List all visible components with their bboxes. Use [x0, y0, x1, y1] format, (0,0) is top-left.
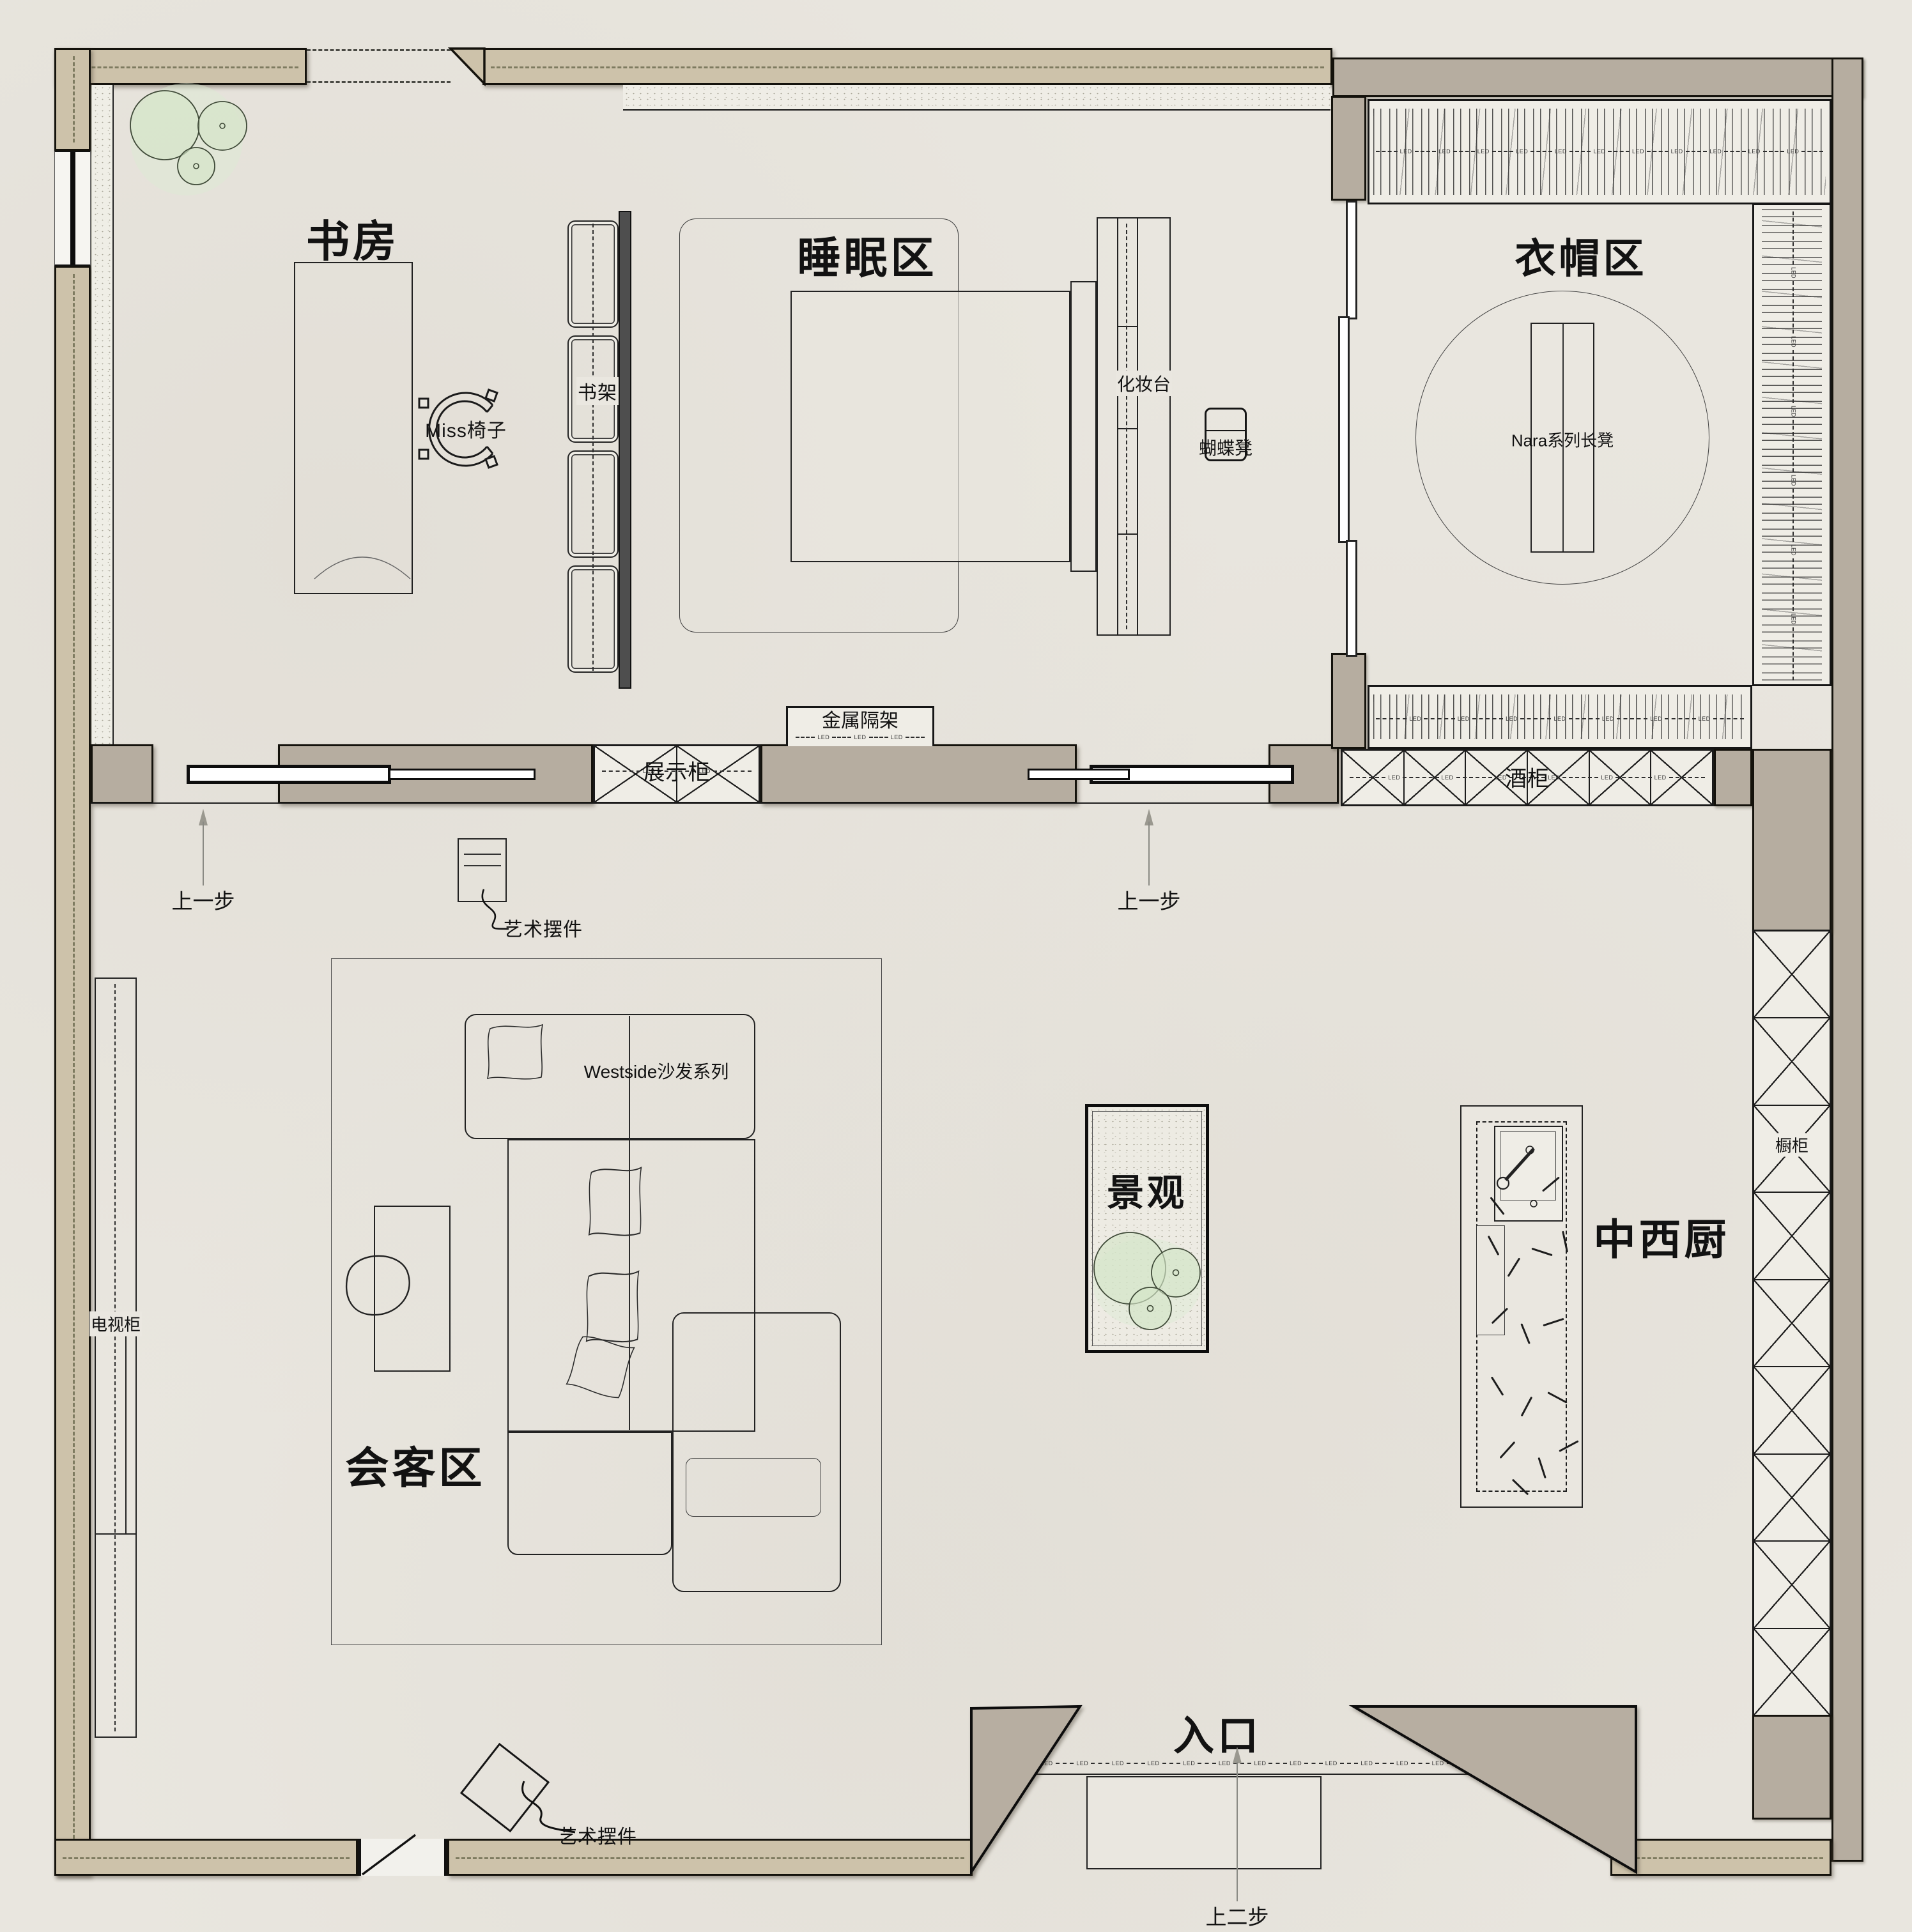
wall-bottom-left — [54, 1839, 358, 1876]
dressing-table-col-right — [1137, 218, 1138, 634]
led-dash — [1304, 1763, 1323, 1764]
led-text: LED — [1593, 149, 1605, 155]
wall-bottom-mid — [447, 1839, 973, 1876]
led-dash — [1617, 718, 1647, 719]
led-text: LED — [1076, 1761, 1088, 1767]
kitchen-sink-inner — [1500, 1131, 1556, 1200]
art-object-2 — [460, 1743, 550, 1832]
landscape-box-inner-border — [1092, 1111, 1202, 1346]
miss-chair-label: Miss椅子 — [425, 415, 507, 443]
led-dash — [906, 737, 925, 738]
led-dash — [713, 770, 752, 772]
led-dash — [1056, 1763, 1074, 1764]
divider-stub-bottom — [1331, 653, 1366, 749]
step-up-two-label: 上二步 — [1206, 1900, 1269, 1931]
entrance-led-baseline — [1017, 1774, 1503, 1775]
led-dash — [1198, 1763, 1216, 1764]
tv-cabinet-label: 电视柜 — [89, 1312, 142, 1337]
led-dash — [1020, 1763, 1038, 1764]
cabinet-cell — [1754, 1542, 1830, 1629]
closet-top: LEDLEDLEDLEDLEDLEDLEDLEDLEDLEDLED — [1368, 99, 1831, 204]
wall-left-lower — [54, 266, 91, 1876]
led-text: LED — [1699, 716, 1711, 722]
led-dash — [1482, 1763, 1500, 1764]
art-label-1: 艺术摆件 — [504, 914, 583, 942]
led-dash — [1375, 1763, 1394, 1764]
led-dash — [1615, 777, 1651, 778]
divider-slide-panel-2 — [1338, 316, 1350, 543]
led-text: LED — [1432, 1761, 1444, 1767]
divider-stub-top — [1331, 96, 1366, 201]
entrance-triangle-left — [971, 1706, 1080, 1872]
led-text: LED — [1602, 716, 1614, 722]
entrance-step — [1086, 1776, 1322, 1869]
led-text: LED — [1671, 149, 1683, 155]
led-dash — [1127, 1763, 1145, 1764]
led-dash — [1562, 777, 1598, 778]
led-dash — [1447, 1763, 1465, 1764]
led-text: LED — [1467, 1761, 1479, 1767]
art-label-2: 艺术摆件 — [558, 1821, 637, 1849]
led-dash — [1415, 151, 1437, 152]
led-text: LED — [1791, 613, 1796, 625]
wall-bottom-right — [1610, 1839, 1831, 1876]
room-label-meeting: 会客区 — [345, 1433, 485, 1496]
entrance-arrow-head — [1233, 1747, 1242, 1763]
led-dash — [1268, 1763, 1287, 1764]
led-text: LED — [1400, 149, 1412, 155]
metal-shelf-label: 金属隔架 — [822, 705, 898, 733]
led-text: LED — [1396, 1761, 1408, 1767]
led-text: LED — [1791, 544, 1796, 556]
led-dash — [1350, 777, 1385, 778]
led-dash — [1569, 718, 1600, 719]
cabinet-cell — [1754, 1280, 1830, 1367]
closet-bottom-led: LEDLEDLEDLEDLEDLEDLED — [1373, 714, 1746, 723]
plaster-strip-left — [91, 85, 114, 744]
tv-cabinet-inner-line — [125, 1316, 127, 1533]
led-text: LED — [817, 735, 829, 740]
cabinet-cell — [1754, 931, 1830, 1018]
bookshelf-back-bar — [619, 211, 631, 689]
wall-left — [54, 48, 91, 151]
sliding-door-1-leaf — [389, 769, 536, 780]
led-dash — [1792, 627, 1794, 680]
landscape-box — [1085, 1104, 1209, 1353]
cupboard-label: 橱柜 — [1774, 1133, 1810, 1157]
led-text: LED — [1361, 1761, 1373, 1767]
led-text: LED — [891, 735, 903, 740]
cabinet-cell — [1754, 1629, 1830, 1715]
led-text: LED — [1112, 1761, 1124, 1767]
closet-right: LEDLEDLEDLEDLEDLED — [1752, 203, 1831, 686]
cabinet-cell — [1754, 1455, 1830, 1542]
closet-bottom: LEDLEDLEDLEDLEDLEDLED — [1368, 685, 1752, 749]
led-text: LED — [1601, 775, 1613, 781]
art-object-1-line1 — [464, 854, 501, 855]
led-dash — [1713, 718, 1744, 719]
led-text: LED — [1787, 149, 1799, 155]
led-dash — [1162, 1763, 1181, 1764]
sofa-seat-extension — [507, 1432, 672, 1555]
cupboard-column — [1752, 930, 1831, 1717]
led-dash — [1686, 151, 1708, 152]
led-dash — [796, 737, 815, 738]
right-column-gray-bottom — [1752, 1715, 1831, 1820]
sliding-door-2-leaf — [1028, 769, 1130, 780]
wine-cabinet-end-stub — [1714, 749, 1752, 806]
cabinet-cell — [1754, 1018, 1830, 1105]
led-dash — [1569, 151, 1591, 152]
entrance-arrow-line — [1237, 1762, 1238, 1901]
cabinet-cell — [1754, 1367, 1830, 1454]
study-desk — [294, 262, 413, 594]
dressing-table-led — [1126, 224, 1127, 629]
led-dash — [1763, 151, 1785, 152]
bed-headboard-column — [1070, 281, 1097, 572]
side-table — [374, 1206, 451, 1372]
led-dash — [1411, 1763, 1430, 1764]
wall-right-gray — [1831, 57, 1863, 1862]
led-dash — [1608, 151, 1630, 152]
led-dash — [1492, 151, 1514, 152]
trees-topleft — [130, 83, 247, 195]
led-text: LED — [1553, 716, 1566, 722]
tv-cabinet-div2 — [96, 1533, 135, 1535]
led-dash — [1403, 777, 1438, 778]
entrance-led-strip: LEDLEDLEDLEDLEDLEDLEDLEDLEDLEDLEDLEDLED — [1017, 1758, 1503, 1768]
led-text: LED — [1748, 149, 1761, 155]
wall-top-left — [54, 48, 307, 85]
room-label-cloak: 衣帽区 — [1515, 226, 1647, 285]
led-dash — [1376, 718, 1407, 719]
window-sill-band — [623, 85, 1330, 111]
wine-cabinet-label: 酒柜 — [1505, 762, 1550, 793]
door-gap-bottom-left — [358, 1839, 447, 1876]
led-dash — [602, 770, 640, 772]
bookshelf-label: 书架 — [576, 377, 619, 405]
led-text: LED — [1254, 1761, 1266, 1767]
room-label-study: 书房 — [306, 206, 399, 270]
wall-gap-dash-bottom — [307, 81, 451, 83]
metal-shelf-led: LEDLEDLED — [793, 733, 927, 741]
partition-stub-left — [91, 744, 153, 804]
led-dash — [1520, 718, 1551, 719]
led-dash — [1647, 151, 1669, 152]
art-object-1-line2 — [464, 865, 501, 866]
led-text: LED — [1516, 149, 1528, 155]
wall-top-main — [482, 48, 1332, 85]
metal-shelf: 金属隔架 LEDLEDLED — [786, 706, 934, 746]
led-text: LED — [1632, 149, 1644, 155]
wall-top-right-gray — [1332, 57, 1863, 97]
led-dash — [869, 737, 888, 738]
led-text: LED — [1650, 716, 1662, 722]
display-cabinet-label: 展示柜 — [644, 755, 711, 786]
led-text: LED — [1219, 1761, 1231, 1767]
led-text: LED — [854, 735, 866, 740]
led-dash — [1792, 350, 1794, 403]
art-object-1 — [458, 838, 507, 902]
closet-top-led: LEDLEDLEDLEDLEDLEDLEDLEDLEDLEDLED — [1373, 147, 1826, 156]
wall-top-main-slant — [451, 49, 484, 84]
led-text: LED — [1388, 775, 1400, 781]
room-label-entrance: 入口 — [1173, 1703, 1261, 1762]
dressing-table-div2 — [1117, 428, 1138, 429]
led-text: LED — [1290, 1761, 1302, 1767]
led-text: LED — [1791, 475, 1796, 486]
led-dash — [1792, 558, 1794, 611]
butterfly-stool-line — [1207, 430, 1245, 431]
led-text: LED — [1325, 1761, 1338, 1767]
right-column-gray-top — [1752, 749, 1831, 931]
dressing-table-label: 化妆台 — [1116, 371, 1172, 396]
sliding-door-1-main — [187, 765, 391, 784]
led-text: LED — [1458, 716, 1470, 722]
led-dash — [1340, 1763, 1359, 1764]
partition-floor-line — [91, 802, 1339, 804]
tv-cabinet-led — [114, 984, 116, 1731]
dressing-table — [1097, 217, 1171, 636]
nara-bench-label: Nara系列长凳 — [1511, 428, 1614, 452]
led-text: LED — [1148, 1761, 1160, 1767]
led-dash — [1472, 718, 1503, 719]
dressing-table-div3 — [1117, 533, 1138, 535]
bed — [790, 291, 1070, 562]
divider-slide-panel-3 — [1346, 540, 1357, 657]
window-left — [54, 151, 91, 266]
step-arrow-1-line — [203, 822, 204, 885]
window-left-mullion — [70, 152, 75, 264]
led-dash — [832, 737, 851, 738]
led-text: LED — [1791, 336, 1796, 348]
wall-gap-dash-top — [307, 49, 451, 51]
led-text: LED — [1506, 716, 1518, 722]
dressing-table-col-left — [1117, 218, 1118, 634]
led-dash — [1530, 151, 1552, 152]
led-text: LED — [1442, 775, 1454, 781]
kitchen-sink — [1494, 1126, 1563, 1222]
led-dash — [1792, 420, 1794, 473]
step-arrow-2-line — [1148, 822, 1150, 885]
step-up-2-label: 上一步 — [1118, 884, 1181, 915]
sofa-chaise — [672, 1312, 841, 1592]
led-dash — [1376, 151, 1398, 152]
closet-right-led: LEDLEDLEDLEDLEDLED — [1789, 209, 1798, 683]
sofa-series-label: Westside沙发系列 — [584, 1058, 729, 1084]
room-label-kitchen: 中西厨 — [1594, 1206, 1730, 1267]
floor-plan-canvas: LEDLED 展示柜 金属隔架 LEDLEDLED 上一步 上一步 LEDLED… — [0, 0, 1912, 1932]
led-text: LED — [1709, 149, 1722, 155]
led-text: LED — [1791, 267, 1796, 279]
led-text: LED — [1555, 149, 1567, 155]
led-text: LED — [1477, 149, 1490, 155]
led-dash — [1792, 489, 1794, 542]
led-dash — [1669, 777, 1705, 778]
led-dash — [1792, 211, 1794, 264]
led-text: LED — [1041, 1761, 1053, 1767]
led-dash — [1453, 151, 1475, 152]
led-text: LED — [1791, 406, 1796, 417]
led-text: LED — [1409, 716, 1421, 722]
tv-cabinet — [95, 977, 137, 1738]
cabinet-cell — [1754, 1193, 1830, 1280]
butterfly-stool-label: 蝴蝶凳 — [1199, 434, 1253, 460]
led-dash — [1801, 151, 1823, 152]
entrance-triangle-right — [1353, 1706, 1636, 1872]
sofa-chaise-cushion — [686, 1458, 821, 1517]
led-dash — [1665, 718, 1695, 719]
dressing-table-div1 — [1117, 326, 1138, 327]
led-dash — [1724, 151, 1746, 152]
room-label-landscape: 景观 — [1107, 1163, 1187, 1216]
bookshelf-led-line — [592, 224, 594, 671]
led-dash — [1792, 281, 1794, 334]
divider-slide-panel-1 — [1346, 201, 1357, 319]
led-dash — [1456, 777, 1492, 778]
led-dash — [1424, 718, 1454, 719]
led-dash — [1091, 1763, 1109, 1764]
led-text: LED — [1438, 149, 1451, 155]
led-text: LED — [1183, 1761, 1195, 1767]
led-text: LED — [1654, 775, 1667, 781]
step-up-1-label: 上一步 — [172, 884, 235, 915]
